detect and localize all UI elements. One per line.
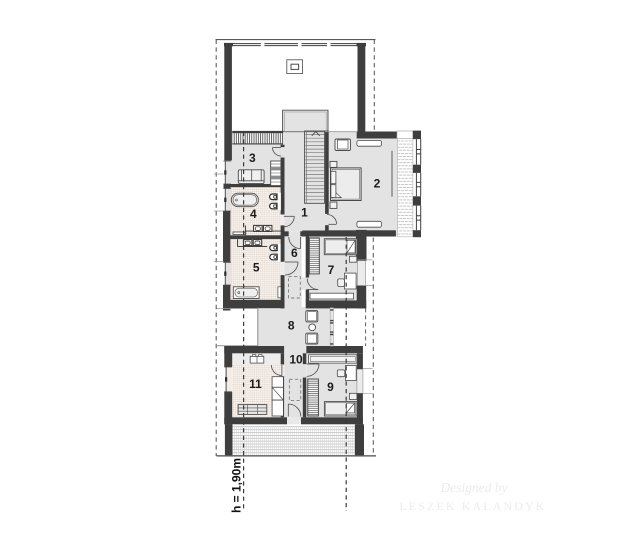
svg-text:11: 11 xyxy=(249,377,262,391)
svg-text:3: 3 xyxy=(249,151,256,165)
svg-text:6: 6 xyxy=(291,246,298,260)
svg-text:9: 9 xyxy=(327,380,334,394)
svg-text:7: 7 xyxy=(328,263,335,277)
svg-text:2: 2 xyxy=(374,176,381,190)
svg-text:h = 1,90m: h = 1,90m xyxy=(229,458,243,513)
svg-text:4: 4 xyxy=(250,207,257,221)
svg-text:8: 8 xyxy=(288,318,295,332)
svg-text:LESZEK KALANDYK: LESZEK KALANDYK xyxy=(399,499,546,513)
svg-text:1: 1 xyxy=(301,206,308,220)
svg-text:Designed by: Designed by xyxy=(439,480,507,495)
svg-text:5: 5 xyxy=(253,261,260,275)
svg-text:10: 10 xyxy=(289,353,303,367)
